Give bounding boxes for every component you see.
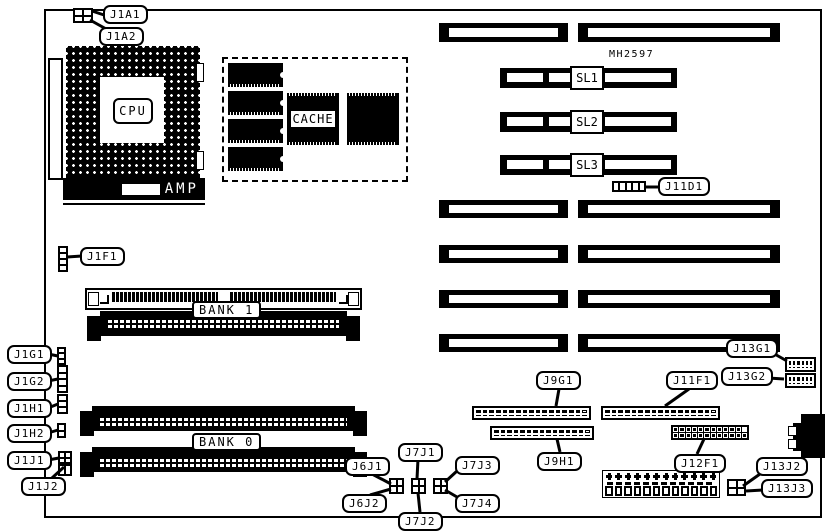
callout-j1a2: J1A2 bbox=[99, 27, 144, 46]
callout-j1a1: J1A1 bbox=[103, 5, 148, 24]
callout-j6j1: J6J1 bbox=[345, 457, 390, 476]
callout-j11f1: J11F1 bbox=[666, 371, 718, 390]
callout-j1h2: J1H2 bbox=[7, 424, 52, 443]
bank0-label: BANK 0 bbox=[192, 433, 261, 451]
callout-j1j2: J1J2 bbox=[21, 477, 66, 496]
leader-j11f1 bbox=[665, 389, 689, 406]
callout-j9g1: J9G1 bbox=[536, 371, 581, 390]
callout-j13j2: J13J2 bbox=[756, 457, 808, 476]
leader-j7j4 bbox=[445, 490, 457, 497]
leader-j7j2 bbox=[418, 493, 420, 512]
callout-j11d1: J11D1 bbox=[658, 177, 710, 196]
motherboard-diagram: CPU AMP CACHE SL1 SL2 SL3 MH2597 bbox=[0, 0, 826, 532]
callout-j13j3: J13J3 bbox=[761, 479, 813, 498]
callout-j7j4: J7J4 bbox=[455, 494, 500, 513]
leader-j7j1 bbox=[417, 459, 418, 479]
callout-j7j2: J7J2 bbox=[398, 512, 443, 531]
leader-j12f1 bbox=[697, 439, 704, 454]
callout-j9h1: J9H1 bbox=[537, 452, 582, 471]
callout-j7j1: J7J1 bbox=[398, 443, 443, 462]
callout-j7j3: J7J3 bbox=[455, 456, 500, 475]
callout-j1h1: J1H1 bbox=[7, 399, 52, 418]
callout-j13g2: J13G2 bbox=[721, 367, 773, 386]
leader-j13j2 bbox=[743, 474, 760, 486]
leader-j9h1 bbox=[557, 439, 560, 452]
callout-j1j1: J1J1 bbox=[7, 451, 52, 470]
leader-j9g1 bbox=[556, 389, 559, 406]
callout-j6j2: J6J2 bbox=[342, 494, 387, 513]
callout-j1f1: J1F1 bbox=[80, 247, 125, 266]
bank1-label: BANK 1 bbox=[192, 301, 261, 319]
callout-j13g1: J13G1 bbox=[726, 339, 778, 358]
callout-j1g1: J1G1 bbox=[7, 345, 52, 364]
leader-j7j3 bbox=[445, 471, 457, 482]
callout-j12f1: J12F1 bbox=[674, 454, 726, 473]
callout-j1g2: J1G2 bbox=[7, 372, 52, 391]
